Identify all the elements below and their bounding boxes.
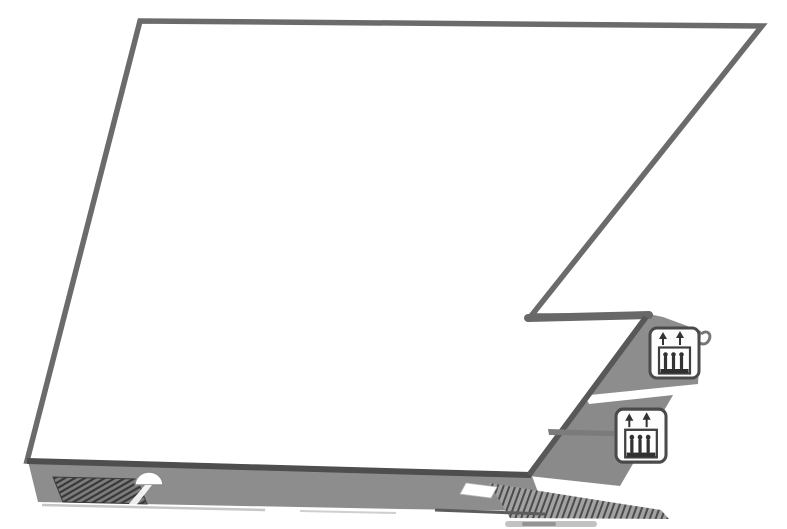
band-shadow-line-left [42, 505, 265, 510]
floor-plan-canvas [0, 0, 787, 529]
floor-plan-svg [0, 0, 787, 529]
notch-bar-edge [528, 315, 649, 318]
band-shadow-line-mid [300, 511, 396, 513]
elevator-icon [616, 409, 666, 462]
stairs-smudge-dark [522, 522, 556, 526]
elevator-icon [650, 328, 699, 378]
icon-hook-mark [700, 332, 710, 344]
